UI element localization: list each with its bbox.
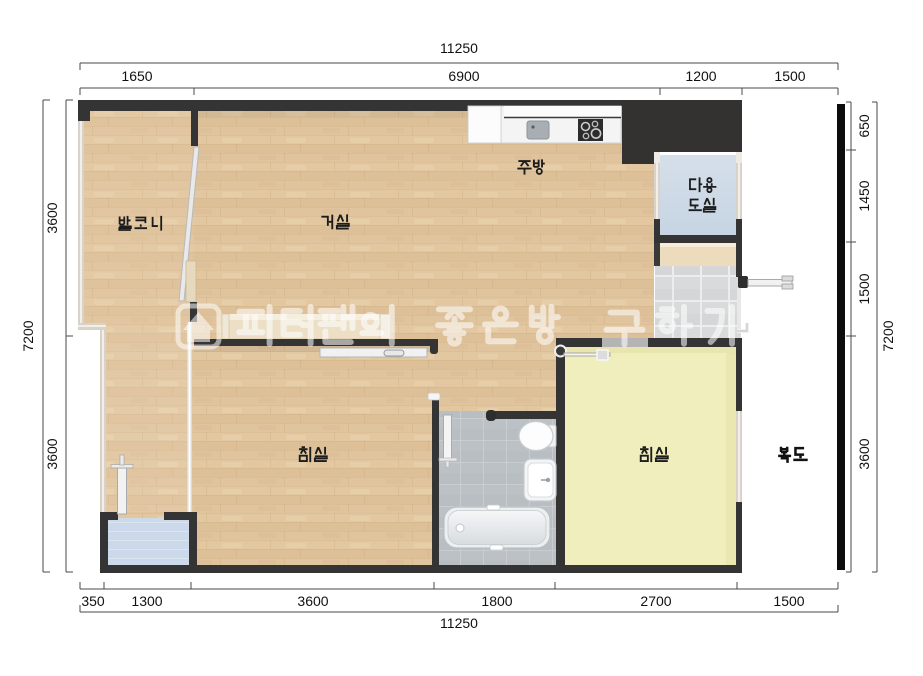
svg-text:650: 650 bbox=[856, 114, 872, 138]
svg-text:1200: 1200 bbox=[685, 68, 716, 84]
svg-text:3600: 3600 bbox=[44, 438, 60, 469]
svg-text:6900: 6900 bbox=[448, 68, 479, 84]
svg-text:1800: 1800 bbox=[481, 593, 512, 609]
svg-text:1650: 1650 bbox=[121, 68, 152, 84]
svg-text:3600: 3600 bbox=[44, 202, 60, 233]
svg-text:1500: 1500 bbox=[856, 273, 872, 304]
svg-text:11250: 11250 bbox=[440, 40, 478, 56]
svg-text:7200: 7200 bbox=[20, 320, 36, 351]
svg-text:1500: 1500 bbox=[774, 68, 805, 84]
svg-text:1300: 1300 bbox=[131, 593, 162, 609]
svg-text:1450: 1450 bbox=[856, 180, 872, 211]
svg-text:7200: 7200 bbox=[880, 320, 896, 351]
svg-text:11250: 11250 bbox=[440, 615, 478, 631]
svg-text:1500: 1500 bbox=[773, 593, 804, 609]
svg-text:350: 350 bbox=[81, 593, 105, 609]
svg-text:3600: 3600 bbox=[856, 438, 872, 469]
svg-text:2700: 2700 bbox=[640, 593, 671, 609]
svg-text:3600: 3600 bbox=[297, 593, 328, 609]
